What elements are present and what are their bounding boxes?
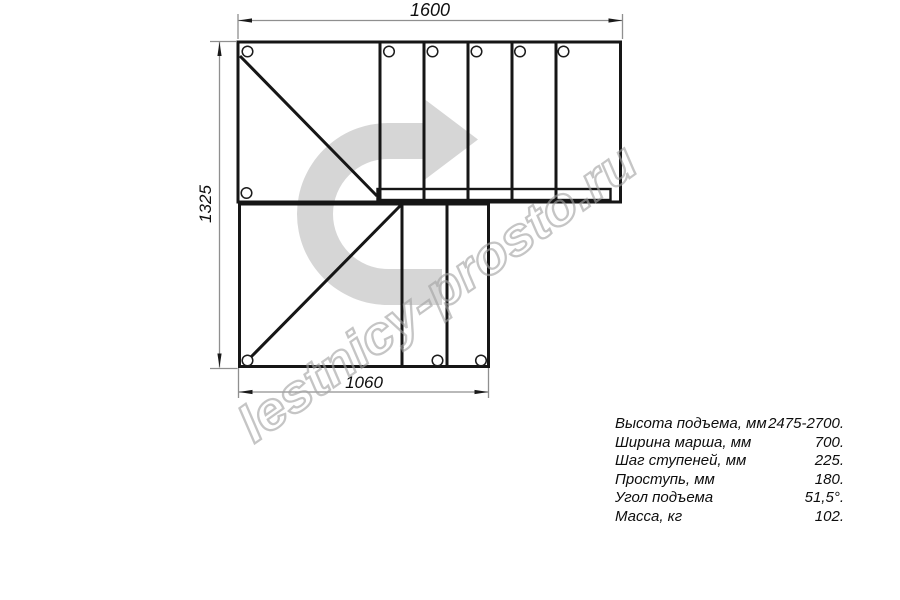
spec-row-step-pitch: Шаг ступеней, мм 225. bbox=[615, 452, 844, 471]
spec-label: Проступь, мм bbox=[615, 471, 715, 490]
spec-label: Высота подъема, мм bbox=[615, 415, 767, 434]
mounting-hole bbox=[242, 46, 253, 57]
spec-label: Масса, кг bbox=[615, 508, 682, 527]
mounting-hole bbox=[515, 46, 526, 57]
spec-row-height: Высота подъема, мм 2475-2700. bbox=[615, 415, 844, 434]
spec-row-mass: Масса, кг 102. bbox=[615, 508, 844, 527]
spec-label: Ширина марша, мм bbox=[615, 434, 751, 453]
mounting-hole bbox=[471, 46, 482, 57]
spec-row-angle: Угол подъема 51,5°. bbox=[615, 489, 844, 508]
mounting-hole bbox=[427, 46, 438, 57]
mounting-hole bbox=[432, 355, 443, 366]
mounting-hole bbox=[558, 46, 569, 57]
mounting-hole bbox=[241, 188, 252, 199]
staircase-drawing-page: 1600 1325 1060 lestnicy-prosto.ru Высота… bbox=[0, 0, 900, 600]
spec-value: 102. bbox=[815, 508, 844, 527]
spec-value: 51,5°. bbox=[805, 489, 844, 508]
spec-value: 180. bbox=[815, 471, 844, 490]
spec-label: Угол подъема bbox=[615, 489, 713, 508]
dimension-label-left: 1325 bbox=[196, 185, 215, 223]
spec-value: 2475-2700. bbox=[768, 415, 844, 434]
mounting-hole bbox=[476, 355, 487, 366]
mounting-hole bbox=[384, 46, 395, 57]
spec-row-march-width: Ширина марша, мм 700. bbox=[615, 434, 844, 453]
spec-label: Шаг ступеней, мм bbox=[615, 452, 746, 471]
spec-row-tread: Проступь, мм 180. bbox=[615, 471, 844, 490]
site-watermark-text: lestnicy-prosto.ru bbox=[227, 133, 647, 454]
spec-table: Высота подъема, мм 2475-2700. Ширина мар… bbox=[615, 415, 844, 527]
dimension-label-top: 1600 bbox=[410, 0, 450, 20]
spec-value: 225. bbox=[815, 452, 844, 471]
mounting-hole bbox=[242, 355, 253, 366]
spec-value: 700. bbox=[815, 434, 844, 453]
